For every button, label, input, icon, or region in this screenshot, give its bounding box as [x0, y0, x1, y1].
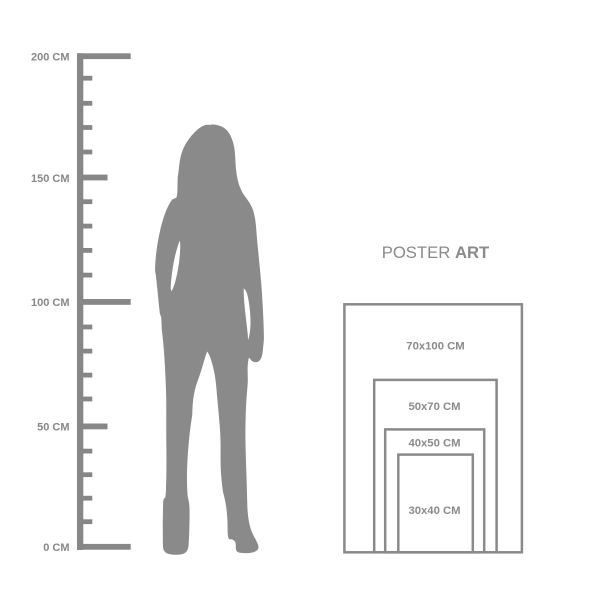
svg-text:200 CM: 200 CM: [31, 52, 70, 64]
svg-text:30x40 CM: 30x40 CM: [408, 505, 460, 517]
svg-text:50 CM: 50 CM: [37, 422, 69, 434]
svg-text:100 CM: 100 CM: [31, 297, 70, 309]
svg-text:POSTER ART: POSTER ART: [382, 243, 490, 262]
svg-text:40x50 CM: 40x50 CM: [408, 438, 460, 450]
svg-text:50x70 CM: 50x70 CM: [408, 401, 460, 413]
svg-text:70x100 CM: 70x100 CM: [406, 340, 464, 352]
svg-text:0 CM: 0 CM: [43, 542, 69, 554]
svg-text:150 CM: 150 CM: [31, 173, 70, 185]
